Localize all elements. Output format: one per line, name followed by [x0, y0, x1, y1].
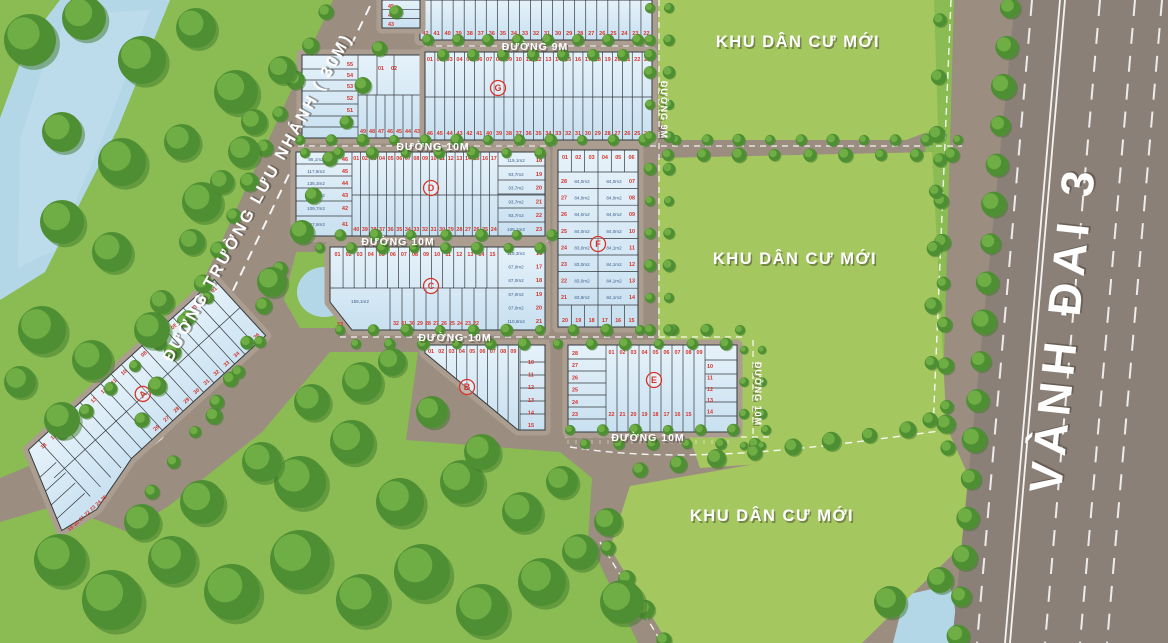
lot-number: 21: [536, 199, 542, 205]
lot-number: 25: [561, 229, 567, 235]
block-letter-D: D: [424, 181, 439, 196]
lot-area: 84,0m2: [606, 212, 622, 217]
lot-number: 24: [457, 321, 463, 327]
lot-area: 135,3m2: [307, 181, 325, 186]
lot-area: 93,7m2: [508, 172, 524, 177]
lot-number: 21: [536, 319, 542, 325]
lot-number: 19: [575, 318, 581, 324]
lot-number: 51: [347, 108, 353, 114]
lot-number: 09: [423, 252, 429, 258]
lot-number: 21: [561, 295, 567, 301]
lot-number: 13: [456, 156, 462, 162]
block-letter-text: D: [428, 183, 435, 193]
lot-number: 03: [357, 252, 363, 258]
lot-area: 84,0m2: [574, 212, 590, 217]
lot-number: 29: [417, 321, 423, 327]
lot-number: 05: [653, 350, 659, 356]
lot-number: 16: [575, 57, 581, 63]
lot-area: 84,1m2: [606, 295, 622, 300]
lot-number: 08: [413, 156, 419, 162]
lot-number: 10: [528, 360, 534, 366]
lot-number: 40: [445, 31, 451, 37]
lot-number: 44: [342, 181, 349, 187]
lot-area: 84,1m2: [606, 245, 622, 250]
lot-number: 44: [405, 129, 411, 135]
block-letter-text: G: [494, 83, 501, 93]
lot-area: 84,0m2: [606, 179, 622, 184]
lot-area: 83,0m2: [574, 245, 590, 250]
residential-area: [658, 0, 938, 140]
lot-area: 67,0m2: [508, 292, 524, 297]
block-letter-text: B: [464, 382, 471, 392]
lot-number: 48: [369, 129, 375, 135]
lot-number: 13: [629, 279, 635, 285]
lot-number: 09: [629, 212, 635, 218]
lot-number: 30: [555, 31, 561, 37]
road-label-9m-vertical: ĐƯỜNG 9MĐƯỜNG 9M: [657, 81, 670, 141]
lot-area: 159,1m2: [351, 299, 369, 304]
lot-number: 01: [353, 156, 359, 162]
lot-number: 20: [536, 186, 542, 192]
lot-area: 93,7m2: [508, 186, 524, 191]
lot-number: 25: [449, 321, 455, 327]
lot-number: 45: [437, 131, 443, 137]
block-letter-text: E: [651, 375, 657, 385]
lot-number: 29: [566, 31, 572, 37]
lot-number: 16: [615, 318, 621, 324]
block-letter-G: G: [491, 81, 506, 96]
lot-area: 84,0m2: [574, 196, 590, 201]
road-label-10m: ĐƯỜNG 10MĐƯỜNG 10M: [361, 235, 436, 250]
lot-number: 04: [642, 350, 648, 356]
lot-area: 67,0m2: [508, 278, 524, 283]
lot-number: 25: [572, 388, 578, 394]
lot-number: 36: [526, 131, 532, 137]
lot-number: 26: [561, 212, 567, 218]
lot-number: 24: [572, 400, 578, 406]
lot-number: 27: [465, 227, 471, 233]
lot-number: 21: [620, 412, 626, 418]
lot-number: 22: [561, 279, 567, 285]
lot-number: 24: [621, 31, 628, 37]
lot-number: 12: [629, 262, 635, 268]
lot-number: 03: [449, 349, 455, 355]
lot-number: 03: [631, 350, 637, 356]
lot-number: 27: [588, 31, 594, 37]
lot-number: 04: [459, 349, 465, 355]
lot-number: 47: [378, 129, 384, 135]
lot-number: 13: [528, 398, 534, 404]
lot-number: 06: [396, 156, 402, 162]
block-letter-B: B: [460, 380, 475, 395]
svg-text:ĐƯỜNG 10M: ĐƯỜNG 10M: [753, 362, 764, 426]
road-label-10m: ĐƯỜNG 10MĐƯỜNG 10M: [611, 431, 686, 446]
lot-number: 01: [609, 350, 615, 356]
lot-number: 01: [562, 155, 568, 161]
lot-area: 84,1m2: [606, 279, 622, 284]
svg-text:ĐƯỜNG 10M: ĐƯỜNG 10M: [361, 235, 434, 248]
lot-number: 41: [342, 222, 348, 228]
lot-area: 84,0m2: [606, 196, 622, 201]
lot-area: 93,7m2: [508, 213, 524, 218]
lot-number: 25: [634, 131, 640, 137]
lot-number: 05: [615, 155, 621, 161]
lot-number: 52: [347, 96, 353, 102]
block-letter-text: C: [428, 281, 435, 291]
lot-area: 83,0m2: [574, 262, 590, 267]
lot-number: 18: [536, 278, 542, 284]
lot-number: 17: [602, 318, 608, 324]
lot-number: 45: [396, 129, 402, 135]
lot-number: 07: [486, 57, 492, 63]
lot-area: 83,0m2: [574, 279, 590, 284]
lot-number: 11: [707, 375, 713, 381]
lot-number: 19: [536, 292, 542, 298]
lot-number: 35: [500, 31, 506, 37]
lot-number: 26: [572, 375, 578, 381]
lot-number: 02: [391, 66, 397, 72]
lot-number: 06: [390, 252, 396, 258]
lot-area: 84,0m2: [574, 179, 590, 184]
lot-number: 06: [664, 350, 670, 356]
lot-number: 54: [347, 73, 354, 79]
lot-number: 35: [396, 227, 402, 233]
lot-area: 95,1m2: [308, 157, 324, 162]
lot-number: 38: [467, 31, 473, 37]
lot-area: 84,1m2: [606, 262, 622, 267]
svg-text:KHU DÂN CƯ MỚI: KHU DÂN CƯ MỚI: [716, 32, 880, 51]
svg-text:ĐƯỜNG 10M: ĐƯỜNG 10M: [396, 140, 469, 153]
lot-number: 03: [589, 155, 595, 161]
lot-number: 30: [585, 131, 591, 137]
lot-number: 35: [535, 131, 541, 137]
lot-number: 45: [342, 169, 348, 175]
lot-number: 31: [431, 227, 437, 233]
lot-number: 19: [536, 172, 542, 178]
lot-number: 26: [624, 131, 630, 137]
lot-number: 23: [572, 412, 578, 418]
lot-number: 43: [388, 22, 394, 28]
lot-number: 42: [466, 131, 472, 137]
road-label-10m: ĐƯỜNG 10MĐƯỜNG 10M: [396, 140, 471, 155]
lot-number: 20: [536, 305, 542, 311]
lot-number: 12: [707, 387, 713, 393]
lot-number: 01: [335, 252, 341, 258]
lot-number: 10: [629, 229, 635, 235]
svg-text:ĐƯỜNG 10M: ĐƯỜNG 10M: [611, 431, 684, 444]
lot-number: 24: [491, 227, 497, 233]
lot-number: 14: [629, 295, 635, 301]
residential-area-label: KHU DÂN CƯ MỚIKHU DÂN CƯ MỚI: [690, 506, 856, 527]
lot-number: 11: [528, 373, 534, 379]
lot-number: 07: [401, 252, 407, 258]
lot-number: 10: [434, 252, 440, 258]
lot-number: 24: [561, 245, 567, 251]
lot-number: 12: [448, 156, 454, 162]
lot-number: 28: [425, 321, 431, 327]
lot-number: 46: [387, 129, 393, 135]
lot-area: 119,1m2: [507, 158, 525, 163]
lot-number: 32: [393, 321, 399, 327]
lot-number: 15: [629, 318, 635, 324]
lot-number: 28: [456, 227, 462, 233]
block-letter-C: C: [424, 279, 439, 294]
lot-area: 117,8m2: [307, 169, 325, 174]
lot-area: 93,7m2: [508, 199, 524, 204]
road-label-10m: ĐƯỜNG 10MĐƯỜNG 10M: [418, 331, 493, 346]
lot-number: 29: [595, 131, 601, 137]
block-top-strip: 4241403938373635343332313029282726252423…: [382, 0, 652, 40]
lot-number: 15: [528, 423, 534, 429]
svg-text:ĐƯỜNG 9M: ĐƯỜNG 9M: [502, 40, 569, 53]
lot-number: 14: [707, 410, 713, 416]
lot-number: 42: [342, 206, 348, 212]
lot-number: 11: [629, 245, 635, 251]
lot-number: 10: [707, 364, 713, 370]
lot-number: 16: [675, 412, 681, 418]
lot-number: 28: [561, 179, 567, 185]
lot-number: 13: [467, 252, 473, 258]
lot-number: 17: [664, 412, 670, 418]
residential-area-label: KHU DÂN CƯ MỚIKHU DÂN CƯ MỚI: [716, 32, 882, 53]
lot-area: 67,0m2: [508, 265, 524, 270]
lot-number: 17: [491, 156, 497, 162]
road-label-9m: ĐƯỜNG 9MĐƯỜNG 9M: [502, 40, 570, 55]
lot-number: 55: [347, 62, 353, 68]
lot-number: 53: [347, 84, 353, 90]
lot-area: 110,8m2: [507, 319, 525, 324]
lot-number: 22: [536, 213, 542, 219]
lot-number: 39: [362, 227, 368, 233]
lot-number: 02: [438, 349, 444, 355]
lot-number: 15: [489, 252, 495, 258]
lot-number: 32: [422, 227, 428, 233]
lot-number: 43: [414, 129, 420, 135]
lot-number: 08: [500, 349, 506, 355]
lot-number: 43: [342, 193, 348, 199]
lot-number: 05: [388, 156, 394, 162]
block-letter-F: F: [591, 237, 606, 252]
lot-number: 09: [697, 350, 703, 356]
lot-number: 32: [565, 131, 571, 137]
lot-number: 15: [686, 412, 692, 418]
lot-number: 20: [631, 412, 637, 418]
lot-number: 16: [482, 156, 488, 162]
lot-number: 02: [575, 155, 581, 161]
site-plan-map: 4241403938373635343332313029282726252423…: [0, 0, 1168, 643]
lot-number: 40: [353, 227, 359, 233]
lot-number: 09: [422, 156, 428, 162]
lot-number: 22: [634, 57, 640, 63]
lot-number: 19: [642, 412, 648, 418]
lot-number: 32: [533, 31, 539, 37]
lot-number: 06: [629, 155, 635, 161]
lot-number: 07: [675, 350, 681, 356]
lot-number: 27: [561, 196, 567, 202]
lot-number: 07: [629, 179, 635, 185]
lot-number: 28: [572, 351, 578, 357]
lot-number: 12: [528, 385, 534, 391]
master-plan-svg: 4241403938373635343332313029282726252423…: [0, 0, 1168, 643]
lot-number: 01: [427, 57, 433, 63]
lot-number: 01: [428, 349, 434, 355]
lot-number: 13: [545, 57, 551, 63]
lot-number: 36: [388, 227, 394, 233]
lot-number: 20: [562, 318, 568, 324]
lot-area: 84,0m2: [574, 229, 590, 234]
lot-number: 41: [433, 31, 439, 37]
block-G: 0102030405060708091011121314151617181920…: [425, 52, 652, 140]
svg-text:ĐƯỜNG 10M: ĐƯỜNG 10M: [418, 331, 491, 344]
block-F: 0102030405062019181716152884,0m22784,0m2…: [558, 150, 638, 327]
svg-text:KHU DÂN CƯ MỚI: KHU DÂN CƯ MỚI: [713, 249, 877, 268]
lot-number: 02: [362, 156, 368, 162]
lot-number: 23: [561, 262, 567, 268]
lot-number: 27: [572, 363, 578, 369]
lot-area: 84,0m2: [606, 229, 622, 234]
lot-number: 12: [456, 252, 462, 258]
lot-number: 37: [478, 31, 484, 37]
lot-number: 33: [555, 131, 561, 137]
residential-area-label: KHU DÂN CƯ MỚIKHU DÂN CƯ MỚI: [713, 249, 879, 270]
svg-text:ĐƯỜNG 9M: ĐƯỜNG 9M: [659, 81, 670, 139]
lot-number: 04: [602, 155, 608, 161]
road-label-10m-vertical: ĐƯỜNG 10MĐƯỜNG 10M: [751, 362, 764, 428]
block-letter-text: F: [595, 239, 601, 249]
lot-number: 33: [522, 31, 528, 37]
lot-number: 18: [589, 318, 595, 324]
lot-number: 09: [510, 349, 516, 355]
lot-number: 04: [379, 156, 385, 162]
lot-number: 01: [378, 66, 384, 72]
svg-text:KHU DÂN CƯ MỚI: KHU DÂN CƯ MỚI: [690, 506, 854, 525]
lot-number: 23: [536, 227, 542, 233]
lot-number: 04: [456, 57, 463, 63]
lot-number: 04: [368, 252, 374, 258]
lot-number: 08: [686, 350, 692, 356]
lot-number: 08: [629, 196, 635, 202]
lot-number: 22: [609, 412, 615, 418]
lot-number: 10: [516, 57, 522, 63]
lot-number: 17: [536, 265, 542, 271]
block-C: 01020304050607080910111213141533159,1m23…: [330, 247, 545, 330]
lot-area: 67,0m2: [508, 305, 524, 310]
lot-number: 41: [476, 131, 482, 137]
lot-number: 14: [528, 410, 534, 416]
lot-number: 05: [469, 349, 475, 355]
lot-number: 06: [480, 349, 486, 355]
lot-number: 19: [604, 57, 610, 63]
block-E: 0102030405060708092221201918171615282726…: [568, 345, 737, 432]
block-letter-E: E: [647, 373, 662, 388]
lot-number: 39: [496, 131, 502, 137]
lot-number: 18: [653, 412, 659, 418]
lot-number: 38: [506, 131, 512, 137]
lot-area: 109,7m2: [307, 206, 325, 211]
lot-area: 83,9m2: [574, 295, 590, 300]
lot-number: 13: [707, 398, 713, 404]
